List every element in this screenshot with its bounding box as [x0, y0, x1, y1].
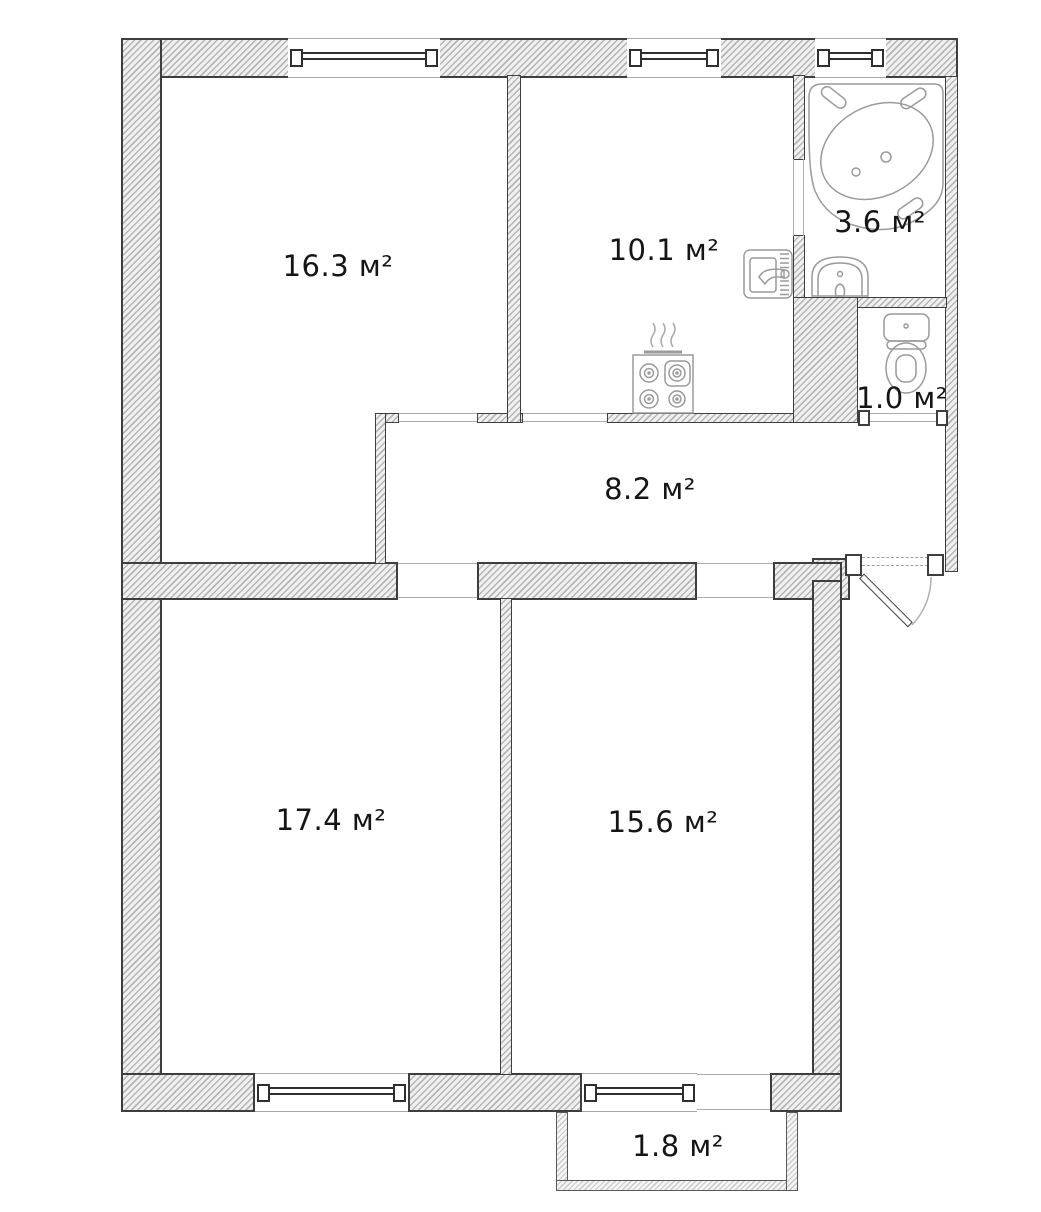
entrance-door-arc-icon: [912, 577, 931, 625]
room-area-label-balcony: 1.8 м²: [632, 1129, 724, 1163]
room-area-label-bathroom: 3.6 м²: [834, 205, 926, 239]
stove-icon: [633, 323, 693, 413]
room-area-label-hallway: 8.2 м²: [604, 472, 696, 506]
room-area-label-toilet: 1.0 м²: [856, 381, 948, 415]
room-area-label-bedroom-right: 15.6 м²: [608, 805, 719, 839]
fixtures-layer: [0, 0, 1041, 1212]
washbasin-icon: [812, 257, 868, 296]
kitchen-sink-icon: [744, 250, 792, 298]
room-area-label-living-room: 16.3 м²: [283, 249, 394, 283]
room-area-label-bedroom-left: 17.4 м²: [276, 803, 387, 837]
room-area-label-kitchen: 10.1 м²: [609, 233, 720, 267]
floor-plan: 16.3 м² 10.1 м² 3.6 м² 1.0 м² 8.2 м² 17.…: [0, 0, 1041, 1212]
